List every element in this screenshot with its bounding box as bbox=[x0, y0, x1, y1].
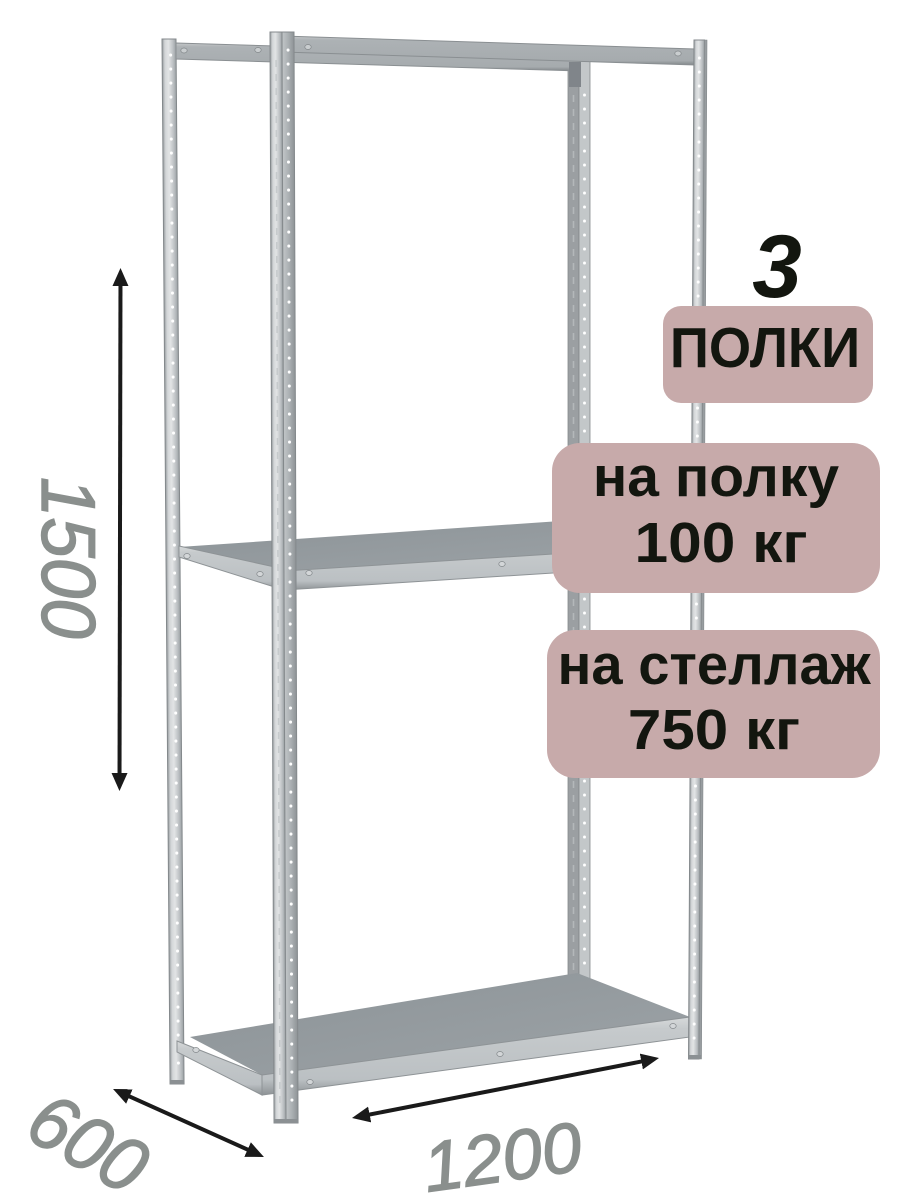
svg-text:600: 600 bbox=[14, 1075, 163, 1200]
svg-text:1200: 1200 bbox=[418, 1107, 586, 1200]
svg-text:1500: 1500 bbox=[26, 477, 111, 638]
